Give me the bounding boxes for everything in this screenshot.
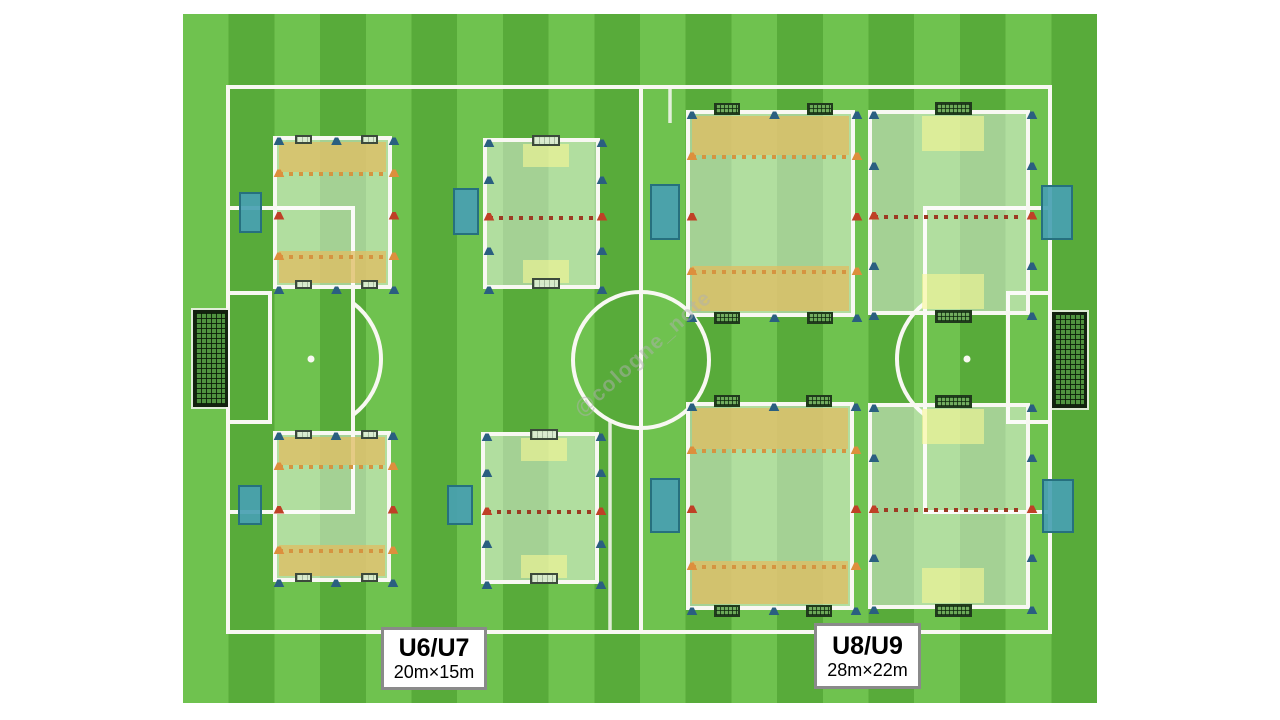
mini-goal-top — [530, 429, 558, 440]
teal-goal-marker — [650, 184, 680, 240]
mini-goal-bottom — [714, 605, 740, 617]
teal-goal-marker — [453, 188, 479, 235]
mini-goal-top — [807, 103, 833, 115]
mini-goal-top — [714, 103, 740, 115]
end-zone-dotted-line-bottom — [692, 565, 848, 569]
end-zone-top — [279, 142, 386, 172]
mini-goal-bottom — [935, 310, 972, 323]
mini-goal-bottom — [714, 312, 740, 324]
halfway-dotted-line — [874, 508, 1024, 512]
halfway-dotted-line — [487, 510, 593, 514]
mini-goal-bottom — [530, 573, 558, 584]
penalty-spot-left — [308, 356, 315, 363]
teal-goal-marker — [447, 485, 473, 525]
age-group-title: U8/U9 — [832, 632, 903, 660]
mini-goal-bottom — [806, 605, 832, 617]
end-zone-dotted-line-top — [279, 465, 385, 469]
teal-goal-marker — [239, 192, 262, 233]
u6u7-endzone-field-upper — [273, 136, 392, 289]
mini-goal-bottom — [361, 573, 378, 582]
label-box-u6u7: U6/U7 20m×15m — [381, 627, 487, 690]
u6u7-midline-field-upper — [483, 138, 600, 289]
pitch-diagram: @cologne_note U6/U7 20m×15m U8/U9 28m×22… — [0, 0, 1280, 720]
penalty-spot-right — [964, 356, 971, 363]
end-zone-dotted-line-top — [692, 449, 848, 453]
field-size-text: 20m×15m — [394, 662, 475, 682]
goal-area-left — [228, 293, 270, 422]
end-zone-dotted-line-bottom — [692, 270, 849, 274]
label-box-u8u9: U8/U9 28m×22m — [814, 623, 921, 689]
halfway-dotted-line — [874, 215, 1024, 219]
teal-goal-marker — [650, 478, 680, 533]
u8u9-midline-field-lower — [868, 403, 1030, 609]
mini-goal-bottom — [295, 280, 312, 289]
full-goal-right — [1052, 312, 1087, 408]
end-zone-dotted-line-bottom — [279, 255, 386, 259]
penalty-arc-right — [897, 303, 925, 415]
mini-goal-bottom — [807, 312, 833, 324]
teal-goal-marker — [238, 485, 262, 525]
u8u9-endzone-field-lower — [686, 402, 854, 610]
mini-goal-top — [935, 102, 972, 115]
mini-goal-top — [935, 395, 972, 408]
end-zone-dotted-line-top — [692, 155, 849, 159]
goal-zone-top — [523, 144, 569, 167]
mini-goal-top — [806, 395, 832, 407]
goal-zone-bottom — [922, 568, 984, 603]
u8u9-midline-field-upper — [868, 110, 1030, 315]
end-zone-top — [279, 437, 385, 465]
end-zone-dotted-line-top — [279, 172, 386, 176]
u6u7-midline-field-lower — [481, 432, 599, 584]
halfway-dotted-line — [489, 216, 594, 220]
mini-goal-bottom — [295, 573, 312, 582]
u6u7-endzone-field-lower — [273, 431, 391, 582]
mini-goal-top — [714, 395, 740, 407]
goal-zone-top — [521, 438, 567, 461]
mini-goal-bottom — [935, 604, 972, 617]
mini-goal-top — [532, 135, 560, 146]
mini-goal-top — [361, 430, 378, 439]
mini-goal-bottom — [532, 278, 560, 289]
penalty-arc-left — [353, 303, 381, 415]
teal-goal-marker — [1042, 479, 1074, 533]
teal-goal-marker — [1041, 185, 1073, 240]
field-size-text: 28m×22m — [827, 660, 908, 680]
age-group-title: U6/U7 — [399, 634, 470, 662]
mini-goal-top — [295, 430, 312, 439]
mini-goal-bottom — [361, 280, 378, 289]
end-zone-dotted-line-bottom — [279, 549, 385, 553]
goal-zone-top — [922, 409, 984, 444]
end-zone-top — [692, 408, 848, 449]
mini-goal-top — [295, 135, 312, 144]
mini-goal-top — [361, 135, 378, 144]
goal-zone-top — [922, 116, 984, 151]
full-goal-left — [193, 310, 228, 407]
end-zone-top — [692, 116, 849, 155]
goal-zone-bottom — [922, 274, 984, 309]
